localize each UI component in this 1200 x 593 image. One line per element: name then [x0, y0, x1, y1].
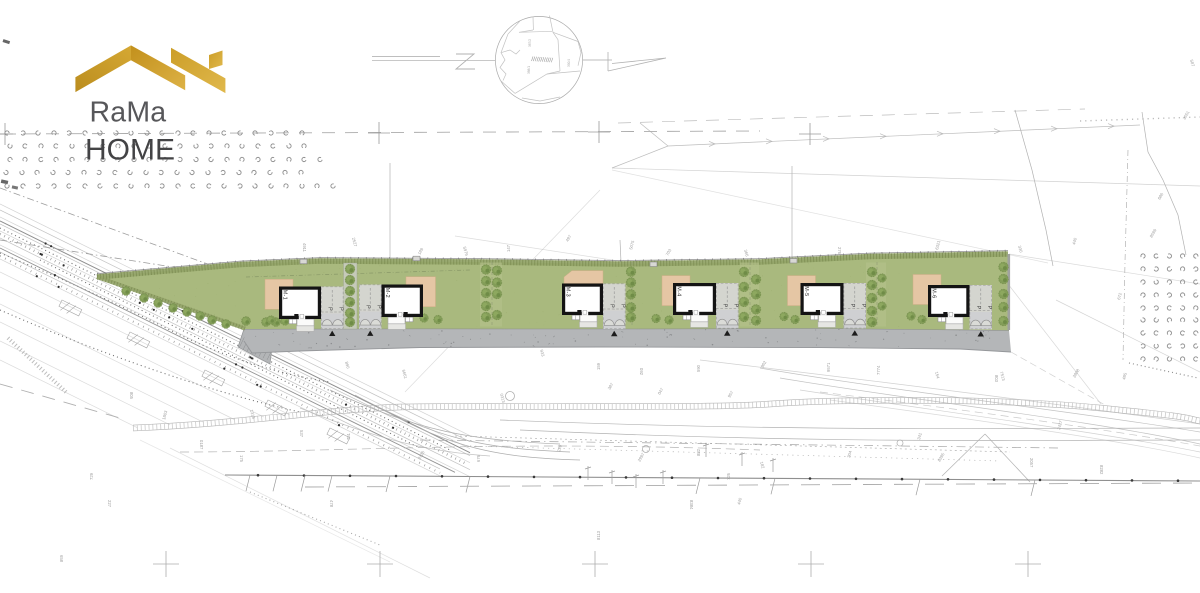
svg-text:729: 729 — [89, 472, 94, 480]
svg-text:227: 227 — [107, 500, 112, 508]
svg-text:M-4: M-4 — [676, 286, 682, 296]
svg-text:803: 803 — [994, 375, 999, 383]
svg-text:805: 805 — [129, 392, 134, 400]
svg-text:P: P — [364, 305, 370, 309]
svg-text:P: P — [375, 305, 381, 309]
svg-text:8282: 8282 — [1099, 465, 1104, 475]
svg-text:8113: 8113 — [596, 530, 601, 540]
svg-text:P: P — [608, 304, 614, 308]
svg-text:478: 478 — [329, 500, 334, 508]
svg-text:175: 175 — [239, 455, 244, 463]
svg-text:P: P — [326, 307, 332, 311]
svg-text:590: 590 — [696, 364, 701, 372]
svg-text:537: 537 — [299, 430, 304, 438]
svg-text:P: P — [986, 306, 992, 310]
svg-text:HOME: HOME — [85, 133, 175, 166]
svg-text:092: 092 — [639, 368, 644, 376]
svg-text:M-3: M-3 — [565, 287, 571, 297]
svg-text:2057: 2057 — [1029, 458, 1034, 468]
svg-text:RaMa: RaMa — [90, 96, 167, 128]
svg-text:P: P — [721, 304, 727, 308]
svg-text:676: 676 — [476, 454, 481, 462]
svg-text:M-1: M-1 — [282, 290, 288, 300]
svg-text:P: P — [860, 304, 866, 308]
svg-text:388/1: 388/1 — [527, 66, 531, 74]
svg-text:882: 882 — [696, 448, 701, 456]
svg-text:P: P — [337, 307, 343, 311]
svg-text:7774: 7774 — [876, 365, 881, 375]
svg-text:0187: 0187 — [199, 440, 204, 450]
svg-text:M-6: M-6 — [931, 288, 937, 298]
svg-text:M-5: M-5 — [803, 286, 809, 296]
svg-text:726: 726 — [726, 472, 731, 480]
svg-text:387/2: 387/2 — [528, 39, 532, 47]
svg-text:8384: 8384 — [689, 500, 694, 510]
svg-text:P: P — [849, 304, 855, 308]
svg-text:M-2: M-2 — [384, 288, 390, 298]
svg-text:P: P — [975, 306, 981, 310]
svg-text:P: P — [732, 304, 738, 308]
svg-text:276: 276 — [837, 247, 842, 255]
svg-text:9571: 9571 — [826, 362, 831, 372]
svg-text:P: P — [619, 304, 625, 308]
svg-text:147: 147 — [506, 244, 511, 252]
svg-text:159: 159 — [596, 362, 601, 370]
svg-text:4911: 4911 — [302, 243, 307, 253]
svg-text:390/4: 390/4 — [567, 59, 571, 67]
svg-text:658: 658 — [59, 555, 64, 563]
